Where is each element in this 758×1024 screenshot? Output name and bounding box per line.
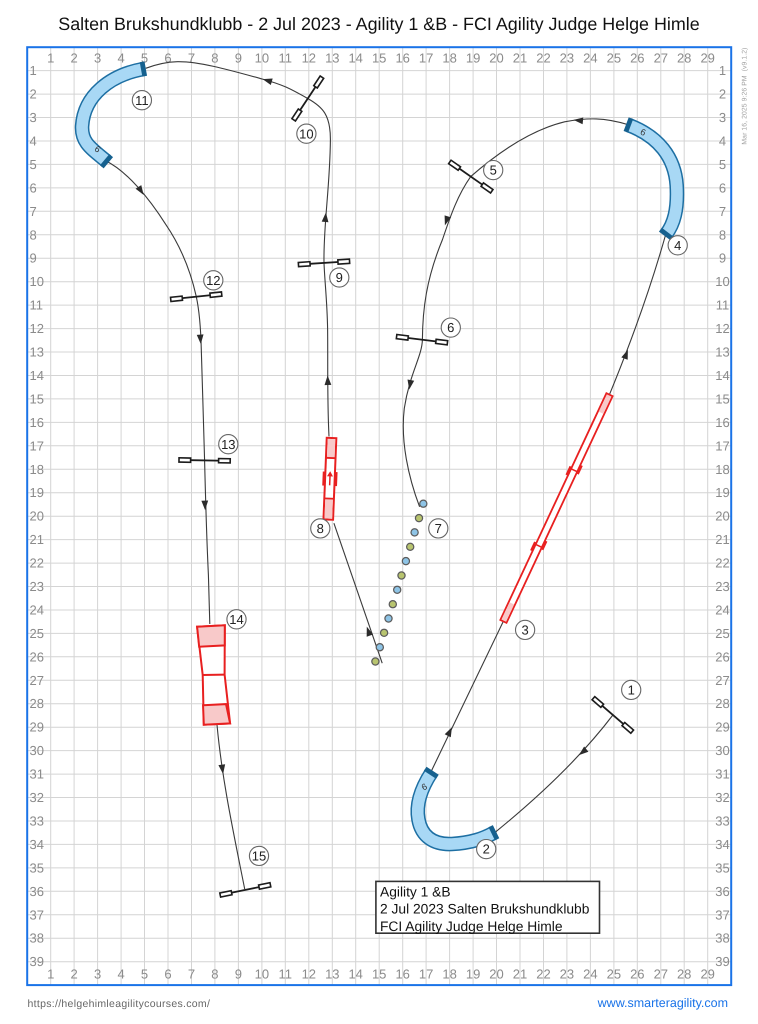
svg-text:6: 6 <box>30 180 37 195</box>
svg-text:17: 17 <box>715 438 729 453</box>
svg-text:25: 25 <box>607 50 621 65</box>
svg-text:16: 16 <box>715 415 729 430</box>
svg-text:19: 19 <box>466 50 480 65</box>
svg-text:12: 12 <box>30 321 44 336</box>
svg-text:37: 37 <box>30 907 44 922</box>
svg-text:25: 25 <box>30 626 44 641</box>
svg-text:2: 2 <box>70 967 77 982</box>
svg-text:18: 18 <box>715 462 729 477</box>
svg-text:39: 39 <box>30 954 44 969</box>
svg-text:4: 4 <box>674 238 681 253</box>
svg-text:26: 26 <box>630 50 644 65</box>
svg-text:10: 10 <box>715 274 729 289</box>
svg-text:38: 38 <box>715 931 729 946</box>
svg-text:11: 11 <box>135 93 149 108</box>
svg-text:4: 4 <box>117 50 124 65</box>
svg-text:15: 15 <box>372 50 386 65</box>
svg-text:3: 3 <box>30 110 37 125</box>
svg-text:25: 25 <box>607 967 621 982</box>
svg-text:https://helgehimleagilitycours: https://helgehimleagilitycourses.com/ <box>28 998 211 1010</box>
svg-text:6: 6 <box>447 320 454 335</box>
svg-text:7: 7 <box>435 521 442 536</box>
svg-text:16: 16 <box>30 415 44 430</box>
svg-text:10: 10 <box>255 50 269 65</box>
svg-text:3: 3 <box>94 50 101 65</box>
svg-text:30: 30 <box>30 743 44 758</box>
svg-text:18: 18 <box>442 967 456 982</box>
svg-text:15: 15 <box>715 391 729 406</box>
svg-text:10: 10 <box>255 967 269 982</box>
svg-text:8: 8 <box>30 227 37 242</box>
svg-text:20: 20 <box>715 509 729 524</box>
svg-text:12: 12 <box>302 50 316 65</box>
svg-text:4: 4 <box>30 134 37 149</box>
svg-text:1: 1 <box>30 63 37 78</box>
svg-text:18: 18 <box>442 50 456 65</box>
svg-text:23: 23 <box>560 967 574 982</box>
svg-text:10: 10 <box>299 126 313 141</box>
svg-text:9: 9 <box>336 270 343 285</box>
svg-text:12: 12 <box>206 273 220 288</box>
svg-text:23: 23 <box>560 50 574 65</box>
svg-text:5: 5 <box>490 163 497 178</box>
svg-text:1: 1 <box>719 63 726 78</box>
svg-text:27: 27 <box>30 673 44 688</box>
svg-text:29: 29 <box>700 967 714 982</box>
svg-text:26: 26 <box>30 649 44 664</box>
svg-text:8: 8 <box>317 521 324 536</box>
svg-text:31: 31 <box>715 767 729 782</box>
svg-text:16: 16 <box>395 967 409 982</box>
svg-text:14: 14 <box>715 368 729 383</box>
svg-text:8: 8 <box>719 227 726 242</box>
svg-text:22: 22 <box>536 50 550 65</box>
svg-text:3: 3 <box>94 967 101 982</box>
svg-text:32: 32 <box>30 790 44 805</box>
svg-text:6: 6 <box>719 180 726 195</box>
svg-text:12: 12 <box>715 321 729 336</box>
svg-text:2: 2 <box>719 87 726 102</box>
svg-text:8: 8 <box>211 50 218 65</box>
svg-text:1: 1 <box>628 683 635 698</box>
svg-text:6: 6 <box>164 967 171 982</box>
svg-text:31: 31 <box>30 767 44 782</box>
svg-text:23: 23 <box>715 579 729 594</box>
svg-text:11: 11 <box>279 967 293 982</box>
svg-text:1: 1 <box>47 967 54 982</box>
svg-text:17: 17 <box>419 967 433 982</box>
svg-text:26: 26 <box>715 649 729 664</box>
svg-text:20: 20 <box>30 509 44 524</box>
svg-text:Salten Brukshundklubb - 2 Jul: Salten Brukshundklubb - 2 Jul 2023 - Agi… <box>58 14 699 34</box>
svg-text:33: 33 <box>715 814 729 829</box>
svg-text:11: 11 <box>30 298 44 313</box>
svg-text:14: 14 <box>30 368 44 383</box>
svg-text:4: 4 <box>117 967 124 982</box>
svg-text:34: 34 <box>715 837 729 852</box>
svg-text:35: 35 <box>30 860 44 875</box>
svg-text:18: 18 <box>30 462 44 477</box>
svg-text:9: 9 <box>719 251 726 266</box>
svg-text:13: 13 <box>325 967 339 982</box>
svg-text:8: 8 <box>211 967 218 982</box>
svg-text:Agility 1 &B: Agility 1 &B <box>380 885 451 900</box>
svg-text:2: 2 <box>483 842 490 857</box>
svg-text:24: 24 <box>30 603 44 618</box>
svg-text:19: 19 <box>30 485 44 500</box>
svg-text:2: 2 <box>30 87 37 102</box>
svg-text:5: 5 <box>30 157 37 172</box>
svg-text:29: 29 <box>30 720 44 735</box>
svg-text:22: 22 <box>30 556 44 571</box>
svg-text:20: 20 <box>489 50 503 65</box>
svg-text:15: 15 <box>372 967 386 982</box>
svg-text:28: 28 <box>677 967 691 982</box>
svg-text:24: 24 <box>715 603 729 618</box>
svg-text:Mar 16, 2025 9:26 PM (v9.1.2): Mar 16, 2025 9:26 PM (v9.1.2) <box>742 48 749 145</box>
svg-text:32: 32 <box>715 790 729 805</box>
svg-text:35: 35 <box>715 860 729 875</box>
svg-text:21: 21 <box>513 50 527 65</box>
svg-text:28: 28 <box>30 696 44 711</box>
svg-text:29: 29 <box>700 50 714 65</box>
svg-text:15: 15 <box>252 849 266 864</box>
svg-text:27: 27 <box>654 967 668 982</box>
svg-text:36: 36 <box>30 884 44 899</box>
svg-text:4: 4 <box>719 134 726 149</box>
svg-text:23: 23 <box>30 579 44 594</box>
svg-text:13: 13 <box>30 345 44 360</box>
svg-text:34: 34 <box>30 837 44 852</box>
svg-text:7: 7 <box>30 204 37 219</box>
svg-text:15: 15 <box>30 391 44 406</box>
svg-text:22: 22 <box>715 556 729 571</box>
svg-text:www.smarteragility.com: www.smarteragility.com <box>597 996 728 1010</box>
svg-text:17: 17 <box>30 438 44 453</box>
svg-text:2 Jul 2023 Salten Brukshundklu: 2 Jul 2023 Salten Brukshundklubb <box>380 902 590 917</box>
svg-text:12: 12 <box>302 967 316 982</box>
svg-text:27: 27 <box>654 50 668 65</box>
svg-text:7: 7 <box>719 204 726 219</box>
svg-text:36: 36 <box>715 884 729 899</box>
svg-text:14: 14 <box>348 967 362 982</box>
svg-text:28: 28 <box>715 696 729 711</box>
svg-text:22: 22 <box>536 967 550 982</box>
svg-text:9: 9 <box>30 251 37 266</box>
svg-text:19: 19 <box>715 485 729 500</box>
svg-text:25: 25 <box>715 626 729 641</box>
svg-text:7: 7 <box>188 967 195 982</box>
svg-text:3: 3 <box>521 623 528 638</box>
svg-text:5: 5 <box>141 967 148 982</box>
svg-text:13: 13 <box>715 345 729 360</box>
svg-text:17: 17 <box>419 50 433 65</box>
svg-text:19: 19 <box>466 967 480 982</box>
svg-text:27: 27 <box>715 673 729 688</box>
svg-text:38: 38 <box>30 931 44 946</box>
svg-text:9: 9 <box>235 50 242 65</box>
svg-text:13: 13 <box>325 50 339 65</box>
svg-text:5: 5 <box>719 157 726 172</box>
svg-text:28: 28 <box>677 50 691 65</box>
svg-text:14: 14 <box>229 612 243 627</box>
svg-text:11: 11 <box>716 298 730 313</box>
svg-text:14: 14 <box>348 50 362 65</box>
svg-text:29: 29 <box>715 720 729 735</box>
svg-text:30: 30 <box>715 743 729 758</box>
svg-text:1: 1 <box>47 50 54 65</box>
svg-text:3: 3 <box>719 110 726 125</box>
svg-text:2: 2 <box>70 50 77 65</box>
svg-text:21: 21 <box>715 532 729 547</box>
svg-text:13: 13 <box>221 437 235 452</box>
svg-text:24: 24 <box>583 967 597 982</box>
svg-text:10: 10 <box>30 274 44 289</box>
svg-text:37: 37 <box>715 907 729 922</box>
svg-text:9: 9 <box>235 967 242 982</box>
svg-text:11: 11 <box>279 50 293 65</box>
svg-text:20: 20 <box>489 967 503 982</box>
svg-text:16: 16 <box>395 50 409 65</box>
svg-text:24: 24 <box>583 50 597 65</box>
svg-text:21: 21 <box>513 967 527 982</box>
svg-text:26: 26 <box>630 967 644 982</box>
svg-text:21: 21 <box>30 532 44 547</box>
svg-text:33: 33 <box>30 814 44 829</box>
svg-text:39: 39 <box>715 954 729 969</box>
svg-text:FCI Agility Judge Helge Himle: FCI Agility Judge Helge Himle <box>380 919 563 934</box>
